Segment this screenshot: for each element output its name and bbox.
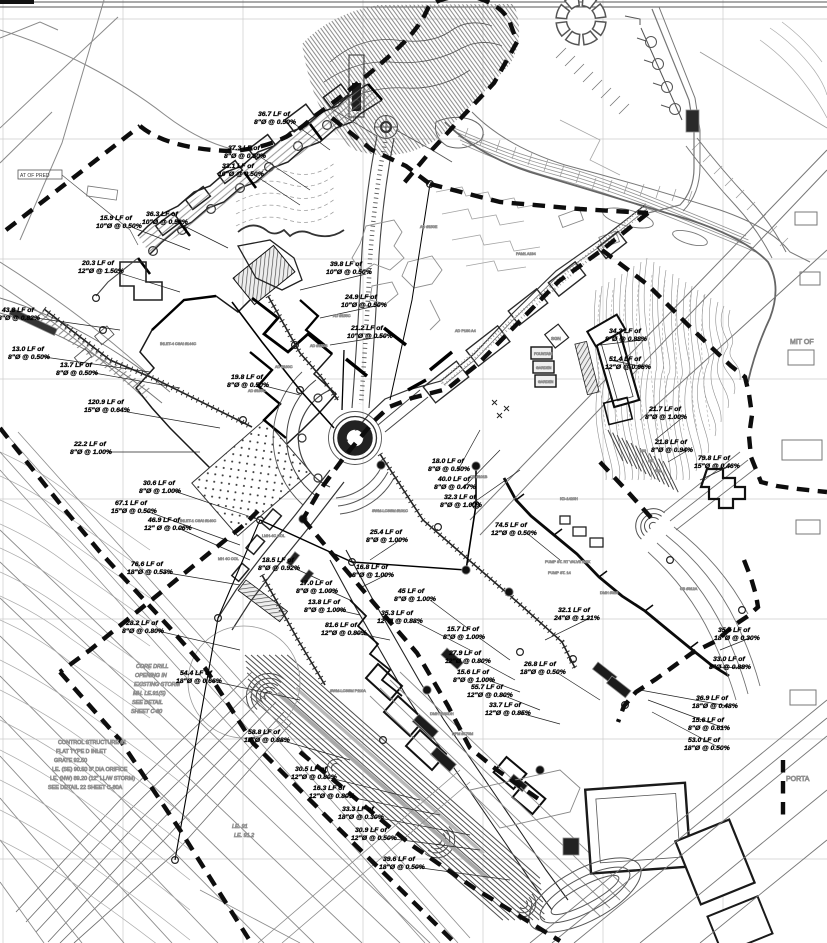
svg-text:PUMP ST. RT VALVE BOX: PUMP ST. RT VALVE BOX <box>545 560 591 564</box>
svg-text:19.8 LF of8"Ø @ 0.50%: 19.8 LF of8"Ø @ 0.50% <box>227 374 269 389</box>
svg-text:CB #312A: CB #312A <box>680 587 698 591</box>
svg-text:15.6 LF of8"Ø @ 1.00%: 15.6 LF of8"Ø @ 1.00% <box>453 669 495 684</box>
svg-text:101: 101 <box>648 459 654 463</box>
svg-text:16.8 LF of8"Ø @ 1.00%: 16.8 LF of8"Ø @ 1.00% <box>352 564 394 579</box>
svg-text:I.E. (NW) 89.20 (12" LL/W STOR: I.E. (NW) 89.20 (12" LL/W STORM) <box>50 776 135 782</box>
svg-text:120.9 LF of15"Ø @ 0.64%: 120.9 LF of15"Ø @ 0.64% <box>84 399 130 414</box>
svg-text:28.2 LF of8"Ø @ 0.80%: 28.2 LF of8"Ø @ 0.80% <box>122 620 164 635</box>
svg-text:21.7 LF of8"Ø @ 1.00%: 21.7 LF of8"Ø @ 1.00% <box>645 406 687 421</box>
svg-text:PAM1 A234: PAM1 A234 <box>516 252 536 256</box>
svg-text:AD P180 A4: AD P180 A4 <box>455 329 476 333</box>
svg-text:SHEET C-80: SHEET C-80 <box>131 709 162 715</box>
svg-text:AD #165C: AD #165C <box>248 389 266 393</box>
svg-text:LE. 91.2: LE. 91.2 <box>234 833 254 839</box>
svg-text:DMH #310: DMH #310 <box>600 591 618 595</box>
svg-text:LMH-4C COL: LMH-4C COL <box>262 534 285 538</box>
svg-text:MH 4C COL: MH 4C COL <box>218 557 239 561</box>
svg-text:AD #150E: AD #150E <box>420 225 438 229</box>
svg-text:SEE DETAIL 22 SHEET C-80A: SEE DETAIL 22 SHEET C-80A <box>48 785 123 791</box>
svg-text:18.5 LF of8"Ø @ 0.92%: 18.5 LF of8"Ø @ 0.92% <box>258 557 300 572</box>
svg-text:13.0 LF of8"Ø @ 0.50%: 13.0 LF of8"Ø @ 0.50% <box>8 346 50 361</box>
svg-text:SWM-LCSSM #101C: SWM-LCSSM #101C <box>372 509 408 513</box>
svg-text:34.3 LF of8"Ø @ 0.88%: 34.3 LF of8"Ø @ 0.88% <box>605 328 647 343</box>
svg-text:CORE DRILL: CORE DRILL <box>136 664 168 670</box>
svg-text:15.7 LF of8"Ø @ 1.00%: 15.7 LF of8"Ø @ 1.00% <box>443 626 485 641</box>
svg-text:AD #150C: AD #150C <box>310 344 328 348</box>
svg-text:CONTROL STRUCTURE #1: CONTROL STRUCTURE #1 <box>58 740 126 746</box>
svg-text:INLET-4 CSAI #144C: INLET-4 CSAI #144C <box>160 342 196 346</box>
svg-text:32.3 LF of8"Ø @ 1.00%: 32.3 LF of8"Ø @ 1.00% <box>440 494 482 509</box>
svg-text:EXISTING STORM: EXISTING STORM <box>134 682 181 688</box>
svg-text:SGN: SGN <box>551 336 561 341</box>
svg-text:FLAT TYPE D INLET: FLAT TYPE D INLET <box>56 749 107 755</box>
svg-text:PUMP ST. 14: PUMP ST. 14 <box>548 571 571 575</box>
svg-text:AD #155C: AD #155C <box>333 314 351 318</box>
svg-text:15.6 LF of8"Ø @ 0.61%: 15.6 LF of8"Ø @ 0.61% <box>688 717 730 732</box>
svg-text:PORTA: PORTA <box>786 776 810 783</box>
svg-text:I.E. (SE) 90.50 3" DIA ORIFICE: I.E. (SE) 90.50 3" DIA ORIFICE <box>52 767 128 773</box>
svg-text:FOUNTAIN: FOUNTAIN <box>534 352 553 356</box>
svg-text:100: 100 <box>640 449 646 453</box>
svg-text:MIT OF: MIT OF <box>790 339 814 346</box>
svg-text:SEE DETAIL: SEE DETAIL <box>132 700 163 706</box>
svg-text:CB #101B: CB #101B <box>470 475 488 479</box>
svg-text:21.8 LF of8"Ø @ 0.94%: 21.8 LF of8"Ø @ 0.94% <box>651 439 693 454</box>
svg-text:33.0 LF of8"Ø @ 0.88%: 33.0 LF of8"Ø @ 0.88% <box>709 656 751 671</box>
svg-text:GARDEN: GARDEN <box>538 380 554 384</box>
svg-text:MH. LE.91(S): MH. LE.91(S) <box>133 691 166 697</box>
svg-text:AT OF PRED: AT OF PRED <box>20 173 50 179</box>
svg-text:DMH #130DH: DMH #130DH <box>430 712 454 716</box>
svg-text:AD #160C: AD #160C <box>275 365 293 369</box>
svg-text:OPENING IN: OPENING IN <box>135 673 167 679</box>
svg-text:GARDEN: GARDEN <box>536 366 552 370</box>
svg-text:SWM-LCSSM P110A: SWM-LCSSM P110A <box>330 689 366 693</box>
svg-text:13.8 LF of8"Ø @ 1.00%: 13.8 LF of8"Ø @ 1.00% <box>304 599 346 614</box>
svg-text:40.0 LF of8"Ø @ 0.47%: 40.0 LF of8"Ø @ 0.47% <box>434 476 476 491</box>
svg-text:DPM #170M: DPM #170M <box>452 732 473 736</box>
svg-text:25.4 LF of8"Ø @ 1.00%: 25.4 LF of8"Ø @ 1.00% <box>366 529 408 544</box>
svg-text:INLET-1 CSAI #140C: INLET-1 CSAI #140C <box>180 519 216 523</box>
svg-text:37.3 LF of8"Ø @ 0.50%: 37.3 LF of8"Ø @ 0.50% <box>224 145 266 160</box>
svg-text:18.0 LF of8"Ø @ 0.50%: 18.0 LF of8"Ø @ 0.50% <box>428 458 470 473</box>
svg-text:102: 102 <box>655 469 661 473</box>
svg-text:I.E. 91: I.E. 91 <box>232 824 248 830</box>
svg-text:KD-1420H: KD-1420H <box>560 497 578 501</box>
svg-text:13.7 LF of8"Ø @ 0.50%: 13.7 LF of8"Ø @ 0.50% <box>56 362 98 377</box>
svg-text:30.6 LF of8"Ø @ 1.00%: 30.6 LF of8"Ø @ 1.00% <box>139 480 181 495</box>
svg-text:17.0 LF of8"Ø @ 1.00%: 17.0 LF of8"Ø @ 1.00% <box>296 580 338 595</box>
svg-text:22.2 LF of8"Ø @ 1.00%: 22.2 LF of8"Ø @ 1.00% <box>70 441 112 456</box>
svg-text:36.7 LF of8"Ø @ 0.50%: 36.7 LF of8"Ø @ 0.50% <box>254 111 296 126</box>
svg-text:GRATE 92.50: GRATE 92.50 <box>54 758 87 764</box>
